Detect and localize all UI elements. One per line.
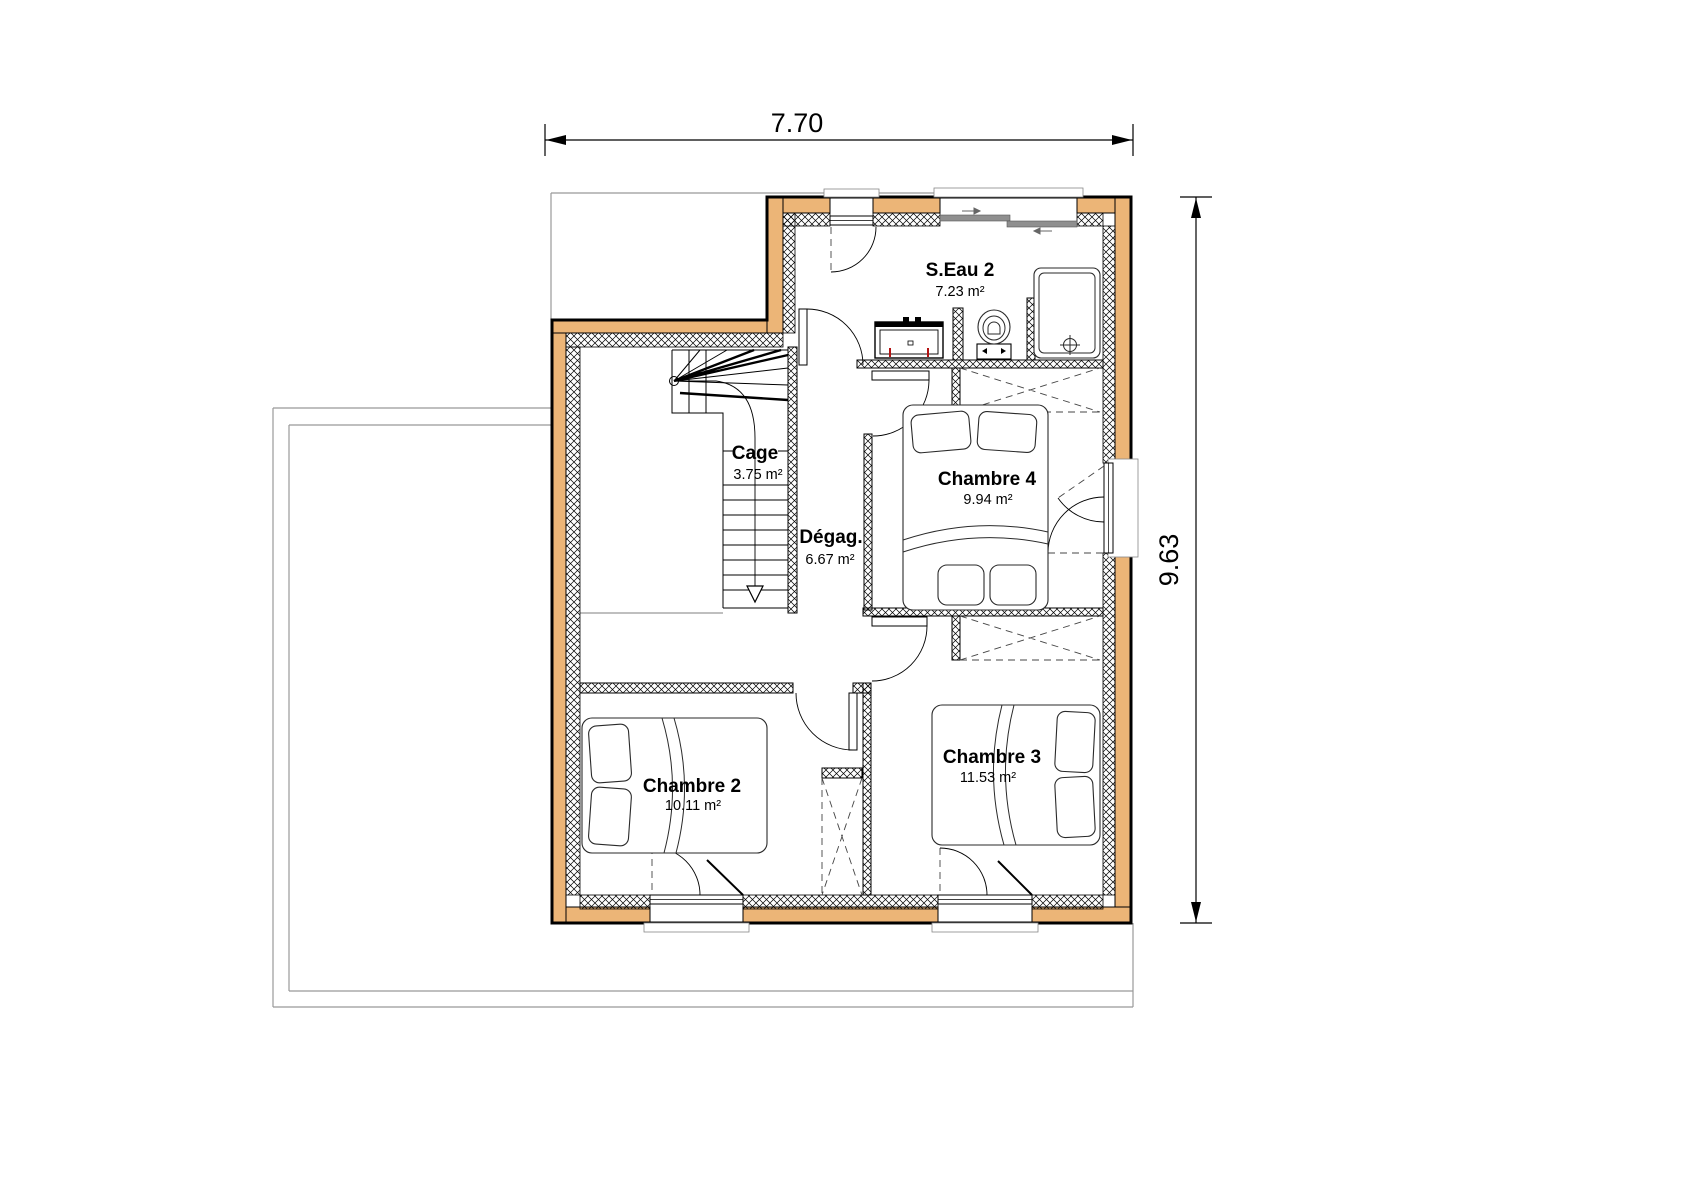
room-area-chambre3: 11.53 m² [960,770,1016,786]
shower-fixture [1034,268,1100,358]
vanity-fixture [875,317,943,358]
room-area-seau2: 7.23 m² [935,284,984,300]
door-chambre3 [872,617,927,681]
dimension-right-value: 9.63 [1154,534,1184,587]
closet-chambre2 [822,778,862,895]
window-chambre2-bottom [644,847,749,932]
toilet-fixture [977,310,1011,359]
floor-plan-drawing: S.Eau 2 7.23 m² Cage 3.75 m² Dégag. 6.67… [0,0,1684,1190]
room-area-degag: 6.67 m² [805,552,854,568]
room-area-chambre4: 9.94 m² [963,492,1012,508]
window-sliding-top [934,188,1083,234]
window-chambre3-bottom [932,848,1038,932]
dimension-top: 7.70 [545,108,1133,156]
room-area-cage: 3.75 m² [733,467,782,483]
room-area-chambre2: 10.11 m² [665,798,721,814]
room-label-chambre3: Chambre 3 [943,747,1041,768]
window-chambre4-right [1048,459,1138,557]
floor-plan-canvas: S.Eau 2 7.23 m² Cage 3.75 m² Dégag. 6.67… [0,0,1684,1190]
room-label-chambre4: Chambre 4 [938,469,1037,490]
room-label-degag: Dégag. [799,527,862,548]
room-label-chambre2: Chambre 2 [643,776,741,797]
room-label-cage: Cage [732,443,778,464]
dimension-top-value: 7.70 [771,108,824,138]
door-bathroom [799,309,863,365]
room-label-seau2: S.Eau 2 [926,260,995,281]
closet-chambre3 [960,616,1100,660]
door-chambre2 [796,693,857,750]
dimension-right: 9.63 [1154,197,1212,923]
window-bathroom-top [824,189,879,272]
